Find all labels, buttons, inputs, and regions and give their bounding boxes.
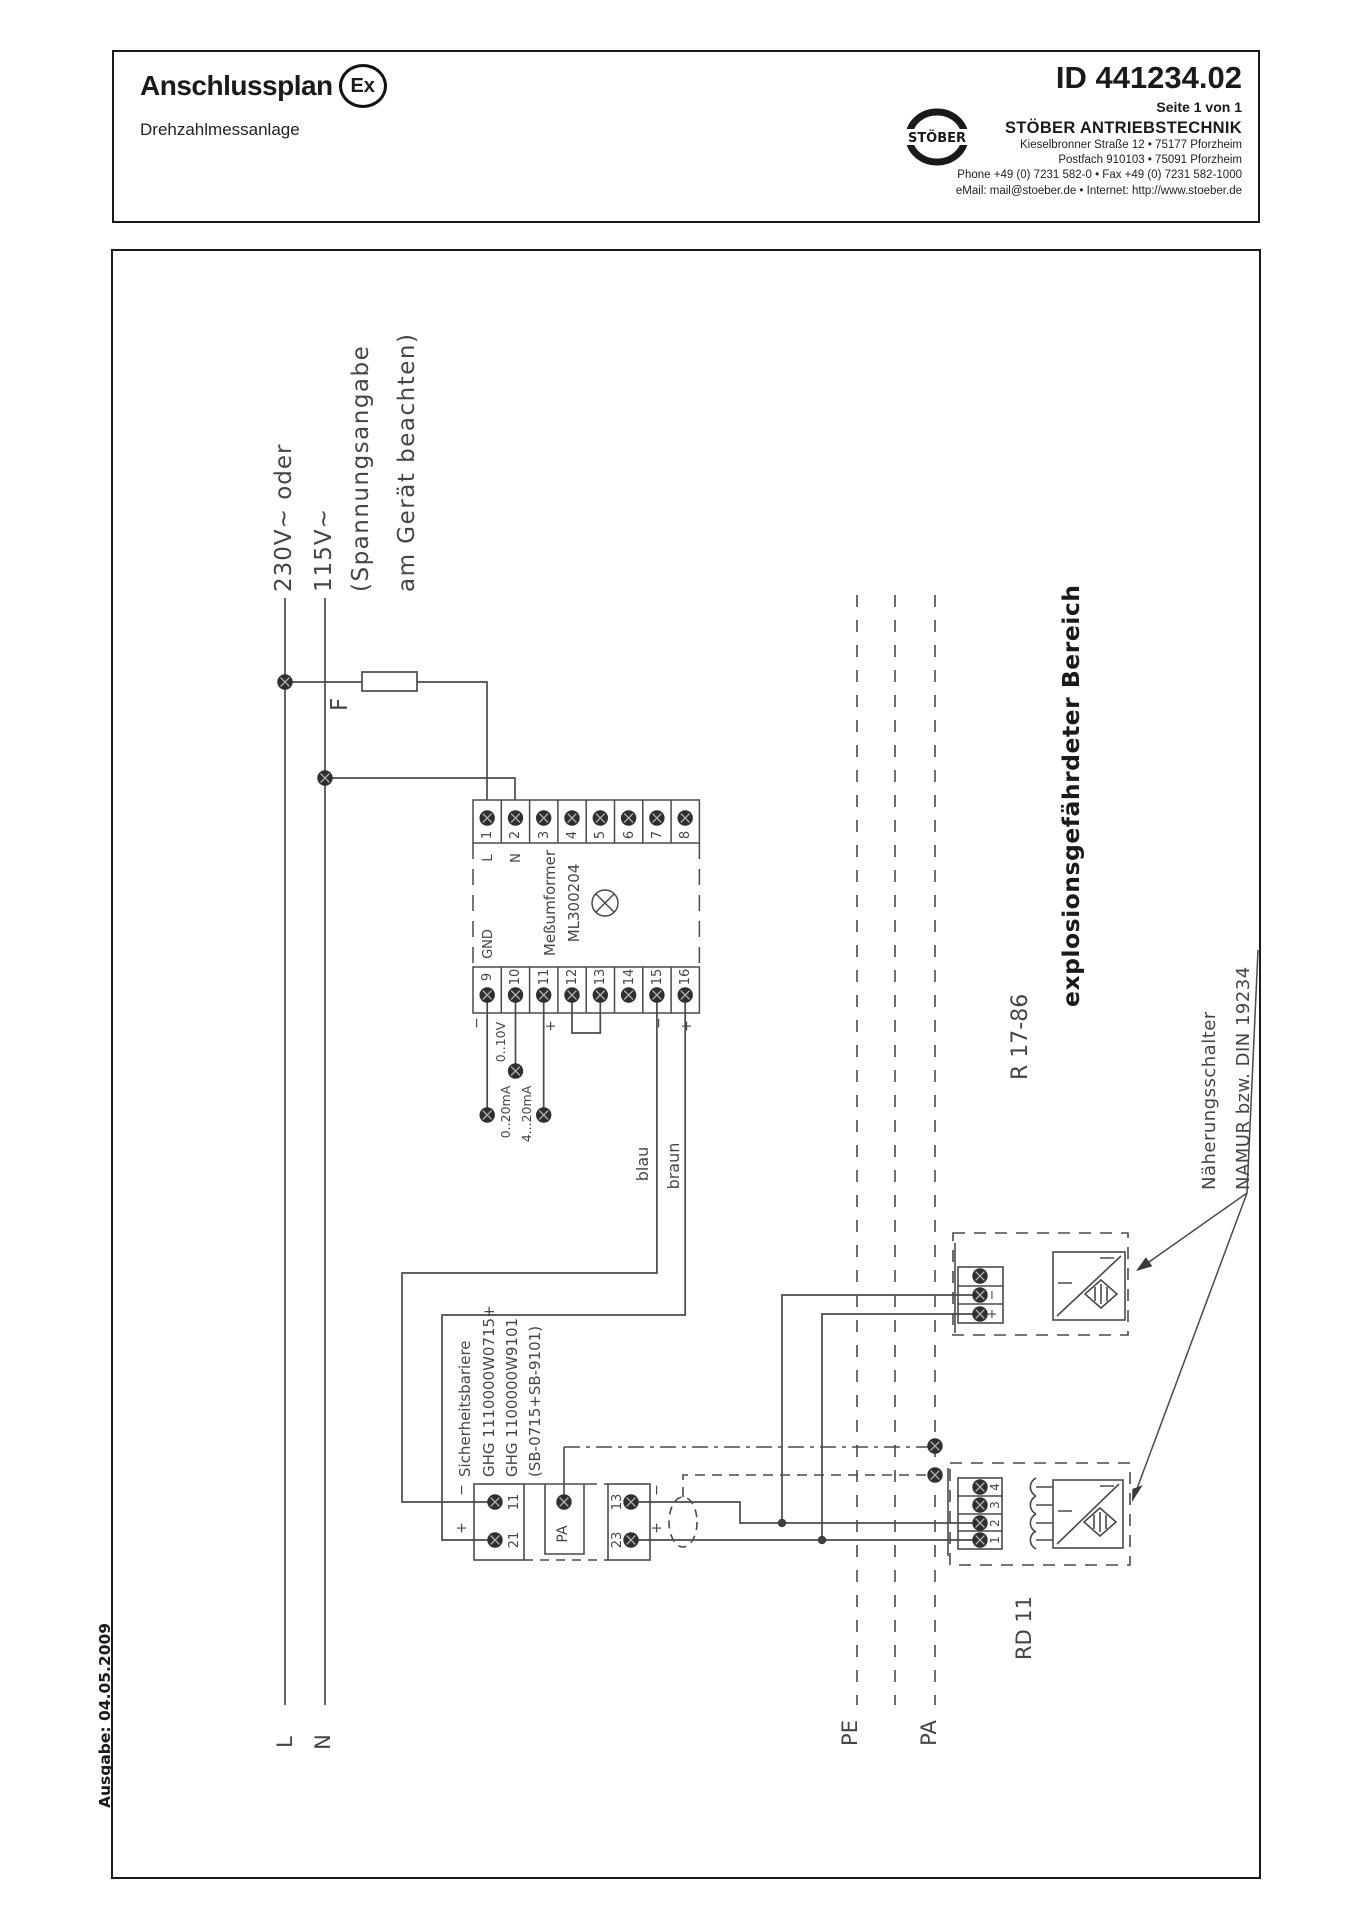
terminal-number: 8	[678, 831, 693, 839]
terminal-number: 2	[508, 831, 523, 839]
transducer-body-sides	[473, 843, 699, 967]
polarity-plus: +	[454, 1522, 470, 1534]
sensor-terminal-number: 1	[988, 1536, 1002, 1544]
fuse-symbol	[362, 672, 417, 691]
address-email: eMail: mail@stoeber.de • Internet: http:…	[956, 184, 1242, 199]
transducer-model: ML300204	[565, 864, 583, 943]
label-wire-blue: blau	[633, 1147, 652, 1182]
transducer-block	[473, 800, 699, 1013]
terminal-number: 9	[480, 973, 495, 981]
terminal-number: 12	[565, 969, 580, 986]
supply-wires	[285, 598, 515, 1705]
label-N: N	[509, 853, 524, 863]
label-range-current2: 4...20mA	[519, 1085, 534, 1142]
address-postbox: Postfach 910103 • 75091 Pforzheim	[956, 153, 1242, 168]
terminal-number: 1	[480, 831, 495, 839]
terminal-number: 15	[650, 969, 665, 986]
barrier-type1: GHG 1110000W0715+	[480, 1305, 498, 1477]
plug-contacts-icon	[1030, 1478, 1036, 1549]
wiring-diagram: 230V~ oder 115V~ (Spannungsangabe am Ger…	[0, 0, 1357, 1920]
page-number: Seite 1 von 1	[956, 99, 1242, 115]
polarity-minus: −	[469, 1017, 485, 1029]
address-phone: Phone +49 (0) 7231 582-0 • Fax +49 (0) 7…	[956, 168, 1242, 183]
wire-fuse-branch	[285, 682, 487, 800]
label-wire-brown: braun	[664, 1143, 683, 1190]
address-street: Kieselbronner Straße 12 • 75177 Pforzhei…	[956, 138, 1242, 153]
polarity-minus: −	[985, 1290, 1000, 1301]
document-subtitle: Drehzahlmessanlage	[140, 120, 387, 140]
wire-junction	[818, 1536, 826, 1544]
polarity-minus: −	[649, 1484, 665, 1496]
label-range-voltage: 0..10V	[493, 1021, 508, 1062]
title-block: Anschlussplan Ex Drehzahlmessanlage ID 4…	[112, 50, 1260, 223]
label-sensor-note1: Näherungsschalter	[1199, 1011, 1220, 1190]
arrowhead-lower	[1132, 1485, 1143, 1502]
label-sensor-lower-model: RD 11	[1012, 1596, 1036, 1660]
document-title: Anschlussplan	[140, 70, 333, 102]
terminal-number: 6	[622, 831, 637, 839]
label-voltage-primary: 230V~ oder	[271, 444, 297, 593]
diagram-labels: 230V~ oder 115V~ (Spannungsangabe am Ger…	[96, 333, 1254, 1808]
label-ex-zone: explosionsgefährdeter Bereich	[1057, 585, 1085, 1007]
label-voltage-note1: (Spannungsangabe	[348, 345, 374, 592]
barrier-type2: GHG 1100000W9101	[503, 1318, 521, 1477]
terminal-number: 11	[537, 969, 552, 986]
junction-screw	[318, 771, 332, 785]
label-GND: GND	[481, 929, 496, 959]
terminal-number: 14	[622, 969, 637, 986]
terminal-number: 3	[537, 831, 552, 839]
wire-minus-loop	[631, 1502, 975, 1523]
stoeber-logo: STÖBER	[904, 108, 970, 166]
terminal-number: 13	[593, 969, 608, 986]
label-bus-pa: PA	[917, 1720, 941, 1746]
terminal-number: 4	[565, 831, 580, 839]
label-L: L	[481, 854, 496, 862]
lamp-cross	[596, 894, 614, 912]
label-sensor-upper-model: R 17-86	[1008, 994, 1033, 1080]
issue-date: Ausgabe: 04.05.2009	[96, 1623, 114, 1808]
label-line-L: L	[273, 1736, 297, 1748]
junction-screw	[278, 675, 292, 689]
wire-junction	[778, 1519, 786, 1527]
wire-upper-plus	[822, 1314, 975, 1540]
transducer-name: Meßumformer	[541, 849, 559, 956]
sensor-terminal-number: 2	[988, 1519, 1002, 1527]
polarity-plus: +	[543, 1020, 559, 1032]
screen-to-pa-line	[683, 1475, 935, 1497]
sensor-terminal-number: 4	[988, 1483, 1002, 1491]
terminal-number: 10	[508, 969, 523, 986]
label-voltage-note2: am Gerät beachten)	[394, 333, 420, 592]
wire-upper-minus	[782, 1295, 975, 1523]
polarity-minus: −	[454, 1484, 470, 1496]
terminal-number: 5	[593, 831, 608, 839]
label-line-N: N	[311, 1734, 335, 1750]
barrier-terminal-pa: PA	[555, 1525, 571, 1543]
ex-badge: Ex	[339, 64, 387, 108]
barrier-name: Sicherheitsbariere	[456, 1340, 474, 1477]
polarity-plus: +	[985, 1309, 1000, 1320]
barrier-terminal-21: 21	[507, 1532, 522, 1549]
arrowhead-upper	[1136, 1257, 1152, 1271]
company-name: STÖBER ANTRIEBSTECHNIK	[956, 119, 1242, 138]
label-fuse: F	[327, 698, 353, 711]
polarity-minus: −	[651, 1017, 667, 1029]
label-voltage-secondary: 115V~	[311, 508, 337, 592]
logo-text: STÖBER	[908, 130, 966, 146]
document-id: ID 441234.02	[956, 60, 1242, 96]
barrier-terminal-13: 13	[610, 1494, 625, 1511]
schematic-page: 230V~ oder 115V~ (Spannungsangabe am Ger…	[0, 0, 1357, 1920]
label-sensor-note2: NAMUR bzw. DIN 19234	[1233, 966, 1254, 1190]
barrier-type3: (SB-0715+SB-9101)	[526, 1326, 544, 1477]
label-bus-pe: PE	[838, 1720, 862, 1746]
polarity-plus: +	[679, 1020, 695, 1032]
sensor-wires	[631, 1295, 975, 1540]
terminal-number: 16	[678, 969, 693, 986]
barrier-terminal-11: 11	[507, 1494, 522, 1511]
terminal-number: 7	[650, 831, 665, 839]
sensor-lower	[948, 1463, 1130, 1565]
polarity-plus: +	[649, 1522, 665, 1534]
barrier-terminal-23: 23	[610, 1532, 625, 1549]
sensor-terminal-number: 3	[988, 1501, 1002, 1509]
label-range-current1: 0..20mA	[498, 1085, 513, 1138]
terminal-screws	[278, 675, 987, 1547]
